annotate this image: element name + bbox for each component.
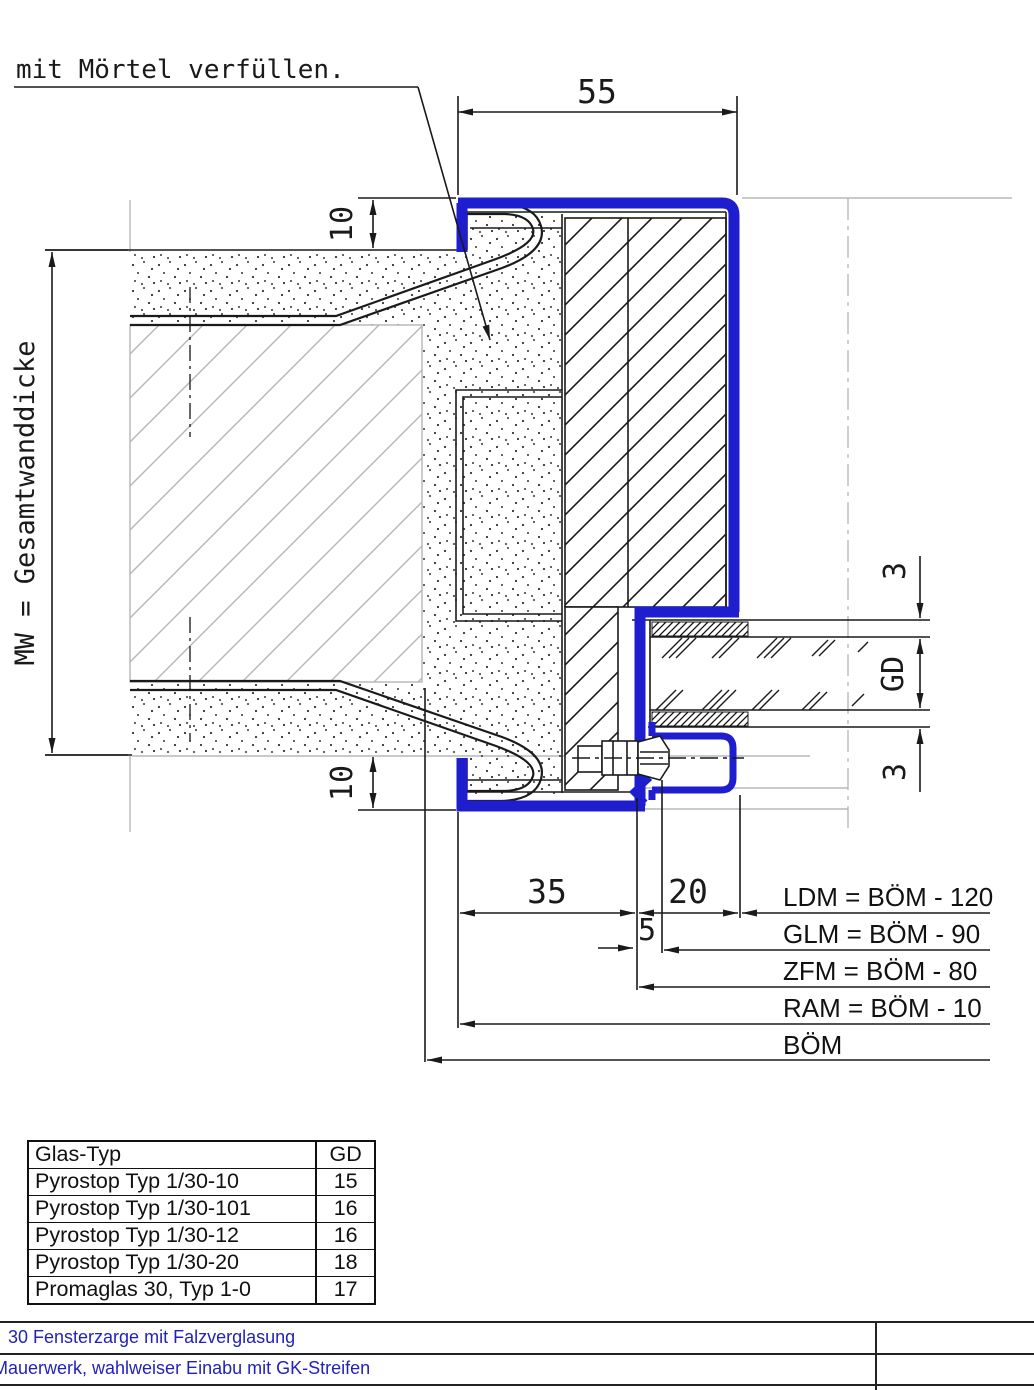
gd-cell: 18	[315, 1250, 374, 1276]
measure-labels: LDM = BÖM - 120 GLM = BÖM - 90 ZFM = BÖM…	[783, 882, 993, 1060]
dim-gd-text: GD	[876, 656, 911, 692]
table-row: Pyrostop Typ 1/30-101 16	[29, 1195, 374, 1222]
mortar-callout-text: mit Mörtel verfüllen.	[16, 55, 345, 85]
dim-5-text: 5	[638, 913, 656, 948]
title-block-border	[0, 1321, 1034, 1323]
dim-10-top: 10	[325, 198, 456, 248]
dim-3-bottom-text: 3	[878, 763, 913, 781]
masonry-wall	[130, 325, 422, 682]
gd-cell: 17	[315, 1277, 374, 1303]
dim-20: 20	[639, 872, 738, 913]
table-row: Pyrostop Typ 1/30-12 16	[29, 1222, 374, 1249]
glass-type-cell: Pyrostop Typ 1/30-20	[29, 1250, 315, 1276]
title-block-divider	[0, 1353, 1034, 1355]
glass-type-cell: Pyrostop Typ 1/30-101	[29, 1196, 315, 1222]
gd-cell: 15	[315, 1169, 374, 1195]
glass-type-table: Glas-Typ GD Pyrostop Typ 1/30-10 15 Pyro…	[27, 1140, 376, 1305]
title-line-1: 30 Fensterzarge mit Falzverglasung	[8, 1327, 295, 1348]
label-glm: GLM = BÖM - 90	[783, 919, 980, 949]
table-row: Pyrostop Typ 1/30-20 18	[29, 1249, 374, 1276]
glass-type-cell: Pyrostop Typ 1/30-12	[29, 1223, 315, 1249]
dim-5: 5	[598, 913, 656, 948]
title-line-2: Mauerwerk, wahlweiser Einabu mit GK-Stre…	[0, 1358, 370, 1379]
drawing-sheet: mit Mörtel verfüllen. 55 10 10	[0, 0, 1034, 1390]
dim-3-top-text: 3	[878, 562, 913, 580]
label-boem: BÖM	[783, 1030, 842, 1060]
table-header-glas-typ: Glas-Typ	[29, 1142, 315, 1168]
glass-hatch-ticks	[656, 638, 868, 710]
title-block-divider	[0, 1384, 1034, 1386]
dim-3-top: 3	[878, 556, 920, 618]
dim-55: 55	[458, 72, 737, 195]
table-header-row: Glas-Typ GD	[29, 1142, 374, 1168]
gd-cell: 16	[315, 1223, 374, 1249]
dim-mw: MW = Gesamtwanddicke	[10, 250, 128, 755]
glazing-seal-top	[652, 622, 748, 636]
dim-20-text: 20	[668, 872, 708, 911]
title-block-vertical-divider	[875, 1321, 877, 1390]
gd-cell: 16	[315, 1196, 374, 1222]
label-ldm: LDM = BÖM - 120	[783, 882, 993, 912]
dim-55-text: 55	[577, 72, 617, 111]
dim-35-text: 35	[527, 872, 567, 911]
dim-gd: GD	[876, 639, 920, 708]
table-row: Promaglas 30, Typ 1-0 17	[29, 1276, 374, 1303]
label-ram: RAM = BÖM - 10	[783, 993, 982, 1023]
dim-35: 35	[460, 872, 635, 913]
dim-10-bottom: 10	[325, 757, 456, 810]
dim-10-top-text: 10	[325, 206, 360, 242]
glass-type-cell: Promaglas 30, Typ 1-0	[29, 1277, 315, 1303]
table-header-gd: GD	[315, 1142, 374, 1168]
label-zfm: ZFM = BÖM - 80	[783, 956, 977, 986]
table-row: Pyrostop Typ 1/30-10 15	[29, 1168, 374, 1195]
dim-mw-text: MW = Gesamtwanddicke	[10, 340, 41, 665]
dim-3-bottom: 3	[878, 729, 920, 792]
glass-type-cell: Pyrostop Typ 1/30-10	[29, 1169, 315, 1195]
glazing-seal-bottom	[652, 712, 748, 726]
dim-10-bottom-text: 10	[325, 765, 360, 801]
